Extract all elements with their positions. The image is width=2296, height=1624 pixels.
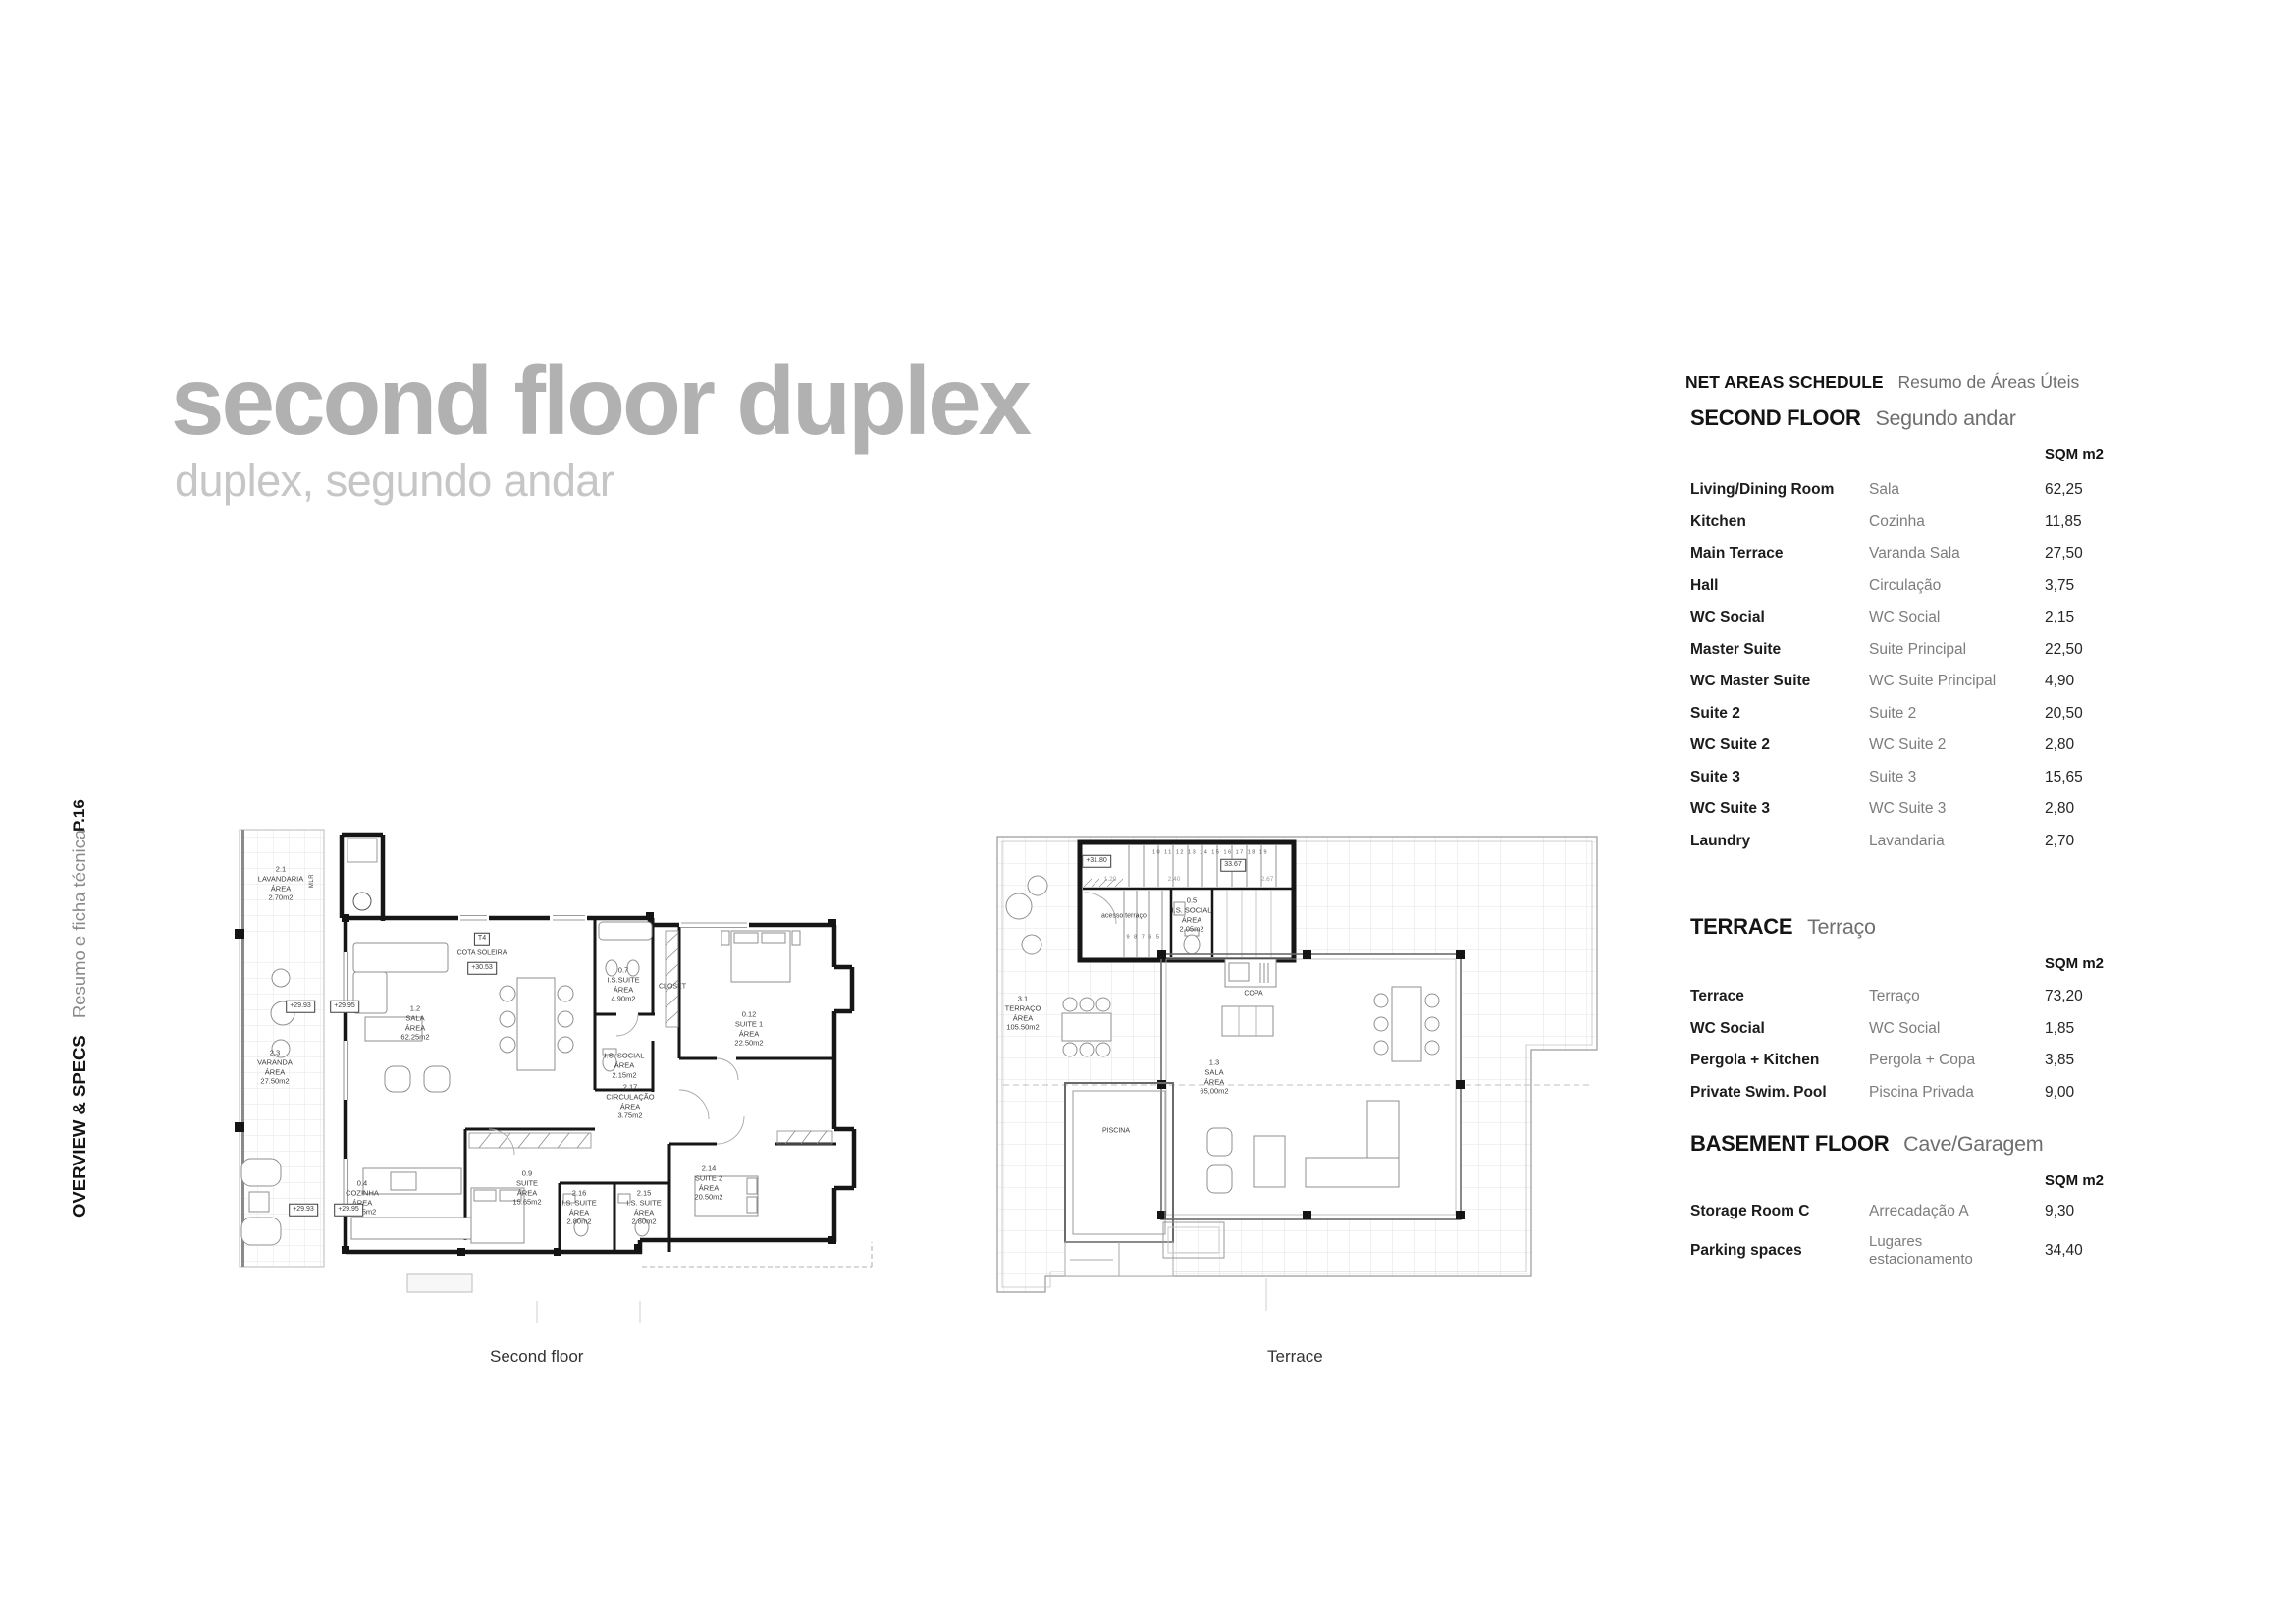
room-name-en: Kitchen: [1690, 514, 1869, 531]
room-name-en: Suite 2: [1690, 705, 1869, 723]
room-name-en: WC Social: [1690, 1020, 1869, 1038]
section-title-pt: Cave/Garagem: [1903, 1132, 2043, 1156]
room-name-pt: Lugares estacionamento: [1869, 1233, 2045, 1268]
dimension-label: 1.20: [1104, 876, 1117, 884]
room-label-is-social: 0.5 I.S. SOCIAL ÁREA 2.05m2: [1172, 896, 1212, 935]
room-area: 15,65: [2045, 769, 2083, 786]
page-subtitle: duplex, segundo andar: [175, 456, 614, 507]
terrace-dashed-outline: [642, 1242, 872, 1267]
table-row: WC Master SuiteWC Suite Principal4,90: [1690, 666, 2152, 698]
sidebar-section-pt: Resumo e ficha técnica: [69, 830, 89, 1018]
cota-label: 33.67: [1220, 859, 1246, 872]
room-name-pt: Sala: [1869, 481, 2045, 499]
reference-lines: [537, 1301, 640, 1323]
plan-caption-second-floor: Second floor: [490, 1347, 583, 1367]
unit-header: SQM m2: [2045, 446, 2104, 462]
room-name-pt: Terraço: [1869, 988, 2045, 1005]
room-label-is-suite-b: 2.15 I.S. SUITE ÁREA 2.80m2: [626, 1189, 661, 1227]
schedule-header-en: NET AREAS SCHEDULE: [1685, 372, 1884, 392]
room-area: 3,85: [2045, 1052, 2074, 1069]
room-area: 22,50: [2045, 641, 2083, 659]
room-area: 3,75: [2045, 577, 2074, 595]
room-name-en: Pergola + Kitchen: [1690, 1052, 1869, 1069]
section-title-pt: Terraço: [1807, 915, 1876, 939]
room-area: 2,80: [2045, 800, 2074, 818]
table-row: WC Suite 3WC Suite 32,80: [1690, 793, 2152, 826]
pool-bg: [1065, 1083, 1173, 1242]
room-label-circulacao: 2.17 CIRCULAÇÃO ÁREA 3.75m2: [606, 1083, 654, 1121]
room-area: 9,30: [2045, 1203, 2074, 1220]
room-name-en: Private Swim. Pool: [1690, 1084, 1869, 1102]
room-area: 9,00: [2045, 1084, 2074, 1102]
level-label: +29.95: [334, 1204, 363, 1217]
room-name-en: WC Suite 2: [1690, 736, 1869, 754]
room-name-en: Master Suite: [1690, 641, 1869, 659]
room-name-pt: Pergola + Copa: [1869, 1052, 2045, 1069]
room-name-pt: Arrecadação A: [1869, 1203, 2045, 1220]
t4-label: T4: [474, 933, 490, 946]
room-name-pt: WC Social: [1869, 609, 2045, 626]
unit-header: SQM m2: [2045, 1172, 2104, 1189]
room-area: 73,20: [2045, 988, 2083, 1005]
room-name-pt: WC Suite 2: [1869, 736, 2045, 754]
room-name-en: Terrace: [1690, 988, 1869, 1005]
room-name-en: Main Terrace: [1690, 545, 1869, 563]
room-name-pt: WC Suite Principal: [1869, 673, 2045, 690]
level-label: +29.93: [286, 1001, 315, 1013]
unit-header: SQM m2: [2045, 955, 2104, 972]
page-title: second floor duplex: [171, 346, 1029, 457]
room-area: 2,15: [2045, 609, 2074, 626]
room-name-en: WC Suite 3: [1690, 800, 1869, 818]
terrace-plan: +31.80 33.67 10 11 12 13 14 15 16 17 18 …: [982, 820, 1610, 1330]
room-label-suite: 0.9 SUITE ÁREA 15.65m2: [512, 1169, 541, 1208]
terrace-drawing: [982, 820, 1610, 1330]
room-label-piscina: PISCINA: [1102, 1126, 1130, 1135]
room-label-mlr: MLR: [309, 874, 317, 888]
table-row: Private Swim. PoolPiscina Privada9,00: [1690, 1077, 2152, 1110]
table-row: Main TerraceVaranda Sala27,50: [1690, 538, 2152, 570]
room-name-pt: WC Social: [1869, 1020, 2045, 1038]
room-label-suite1: 0.12 SUITE 1 ÁREA 22.50m2: [734, 1010, 763, 1049]
section-title-en: SECOND FLOOR: [1690, 406, 1861, 430]
room-label-is-suite-a: 2.16 I.S. SUITE ÁREA 2.80m2: [561, 1189, 596, 1227]
room-name-pt: WC Suite 3: [1869, 800, 2045, 818]
room-name-pt: Lavandaria: [1869, 833, 2045, 850]
room-area: 20,50: [2045, 705, 2083, 723]
table-row: Suite 3Suite 315,65: [1690, 762, 2152, 794]
room-name-en: Laundry: [1690, 833, 1869, 850]
stair-numbers-bottom: 9 8 7 6 5: [1127, 934, 1161, 941]
room-label-is-suite: 0.7 I.S.SUITE ÁREA 4.90m2: [607, 966, 639, 1004]
room-label-is-social: I.S. SOCIAL ÁREA 2.15m2: [605, 1051, 645, 1079]
sidebar-section-label: OVERVIEW & SPECS Resumo e ficha técnica: [69, 830, 90, 1218]
room-name-en: Storage Room C: [1690, 1203, 1869, 1220]
stair-numbers-top: 10 11 12 13 14 15 16 17 18 19: [1152, 849, 1268, 856]
room-name-en: Hall: [1690, 577, 1869, 595]
room-label-lavandaria: 2.1 LAVANDARIA ÁREA 2.70m2: [258, 865, 303, 903]
table-row: LaundryLavandaria2,70: [1690, 826, 2152, 858]
table-row: WC SocialWC Social1,85: [1690, 1013, 2152, 1046]
second-floor-plan: 2.1 LAVANDARIA ÁREA 2.70m2 MLR +29.93 +2…: [226, 805, 874, 1326]
room-area: 11,85: [2045, 514, 2082, 531]
section-title-en: BASEMENT FLOOR: [1690, 1131, 1889, 1156]
table-row: Storage Room CArrecadação A9,30: [1690, 1196, 2152, 1228]
table-row: Suite 2Suite 220,50: [1690, 698, 2152, 731]
room-label-terraco: 3.1 TERRAÇO ÁREA 105.50m2: [1005, 995, 1041, 1033]
sidebar-section-en: OVERVIEW & SPECS: [69, 1035, 89, 1218]
room-area: 2,70: [2045, 833, 2074, 850]
second-floor-drawing: [226, 805, 874, 1326]
schedule-header-pt: Resumo de Áreas Úteis: [1897, 372, 2079, 392]
level-label: +31.80: [1082, 855, 1111, 868]
dimension-label: 2.67: [1261, 876, 1274, 884]
room-name-pt: Suite Principal: [1869, 641, 2045, 659]
section-title-pt: Segundo andar: [1875, 406, 2015, 430]
second-floor-rows: Living/Dining RoomSala62,25 KitchenCozin…: [1690, 474, 2152, 857]
table-row: Master SuiteSuite Principal22,50: [1690, 634, 2152, 667]
page: second floor duplex duplex, segundo anda…: [0, 0, 2296, 1624]
table-row: KitchenCozinha11,85: [1690, 507, 2152, 539]
room-name-pt: Circulação: [1869, 577, 2045, 595]
schedule-header: NET AREAS SCHEDULE Resumo de Áreas Úteis: [1685, 372, 2079, 393]
room-name-pt: Cozinha: [1869, 514, 2045, 531]
room-name-en: WC Master Suite: [1690, 673, 1869, 690]
table-row: Parking spacesLugares estacionamento34,4…: [1690, 1228, 2152, 1273]
page-number: P.16: [70, 799, 89, 832]
table-row: WC Suite 2WC Suite 22,80: [1690, 730, 2152, 762]
room-label-varanda: 2.3 VARANDA ÁREA 27.50m2: [257, 1049, 293, 1087]
table-row: Living/Dining RoomSala62,25: [1690, 474, 2152, 507]
level-label: +29.93: [289, 1204, 318, 1217]
section-heading-basement: BASEMENT FLOOR Cave/Garagem: [1690, 1131, 2043, 1157]
table-row: WC SocialWC Social2,15: [1690, 602, 2152, 634]
room-area: 34,40: [2045, 1242, 2083, 1260]
room-label-sala: 1.2 SALA ÁREA 62.25m2: [400, 1004, 429, 1043]
room-name-en: Living/Dining Room: [1690, 481, 1869, 499]
room-name-pt: Suite 2: [1869, 705, 2045, 723]
room-name-en: Parking spaces: [1690, 1242, 1869, 1260]
table-row: TerraceTerraço73,20: [1690, 981, 2152, 1013]
entry-step: [407, 1274, 472, 1292]
dimension-label: 2.40: [1168, 876, 1181, 884]
section-title-en: TERRACE: [1690, 914, 1792, 939]
room-label-copa: COPA: [1244, 989, 1262, 998]
room-area: 4,90: [2045, 673, 2074, 690]
level-label: +29.95: [330, 1001, 359, 1013]
room-label-sala: 1.3 SALA ÁREA 65,00m2: [1200, 1058, 1228, 1097]
room-label-suite2: 2.14 SUITE 2 ÁREA 20.50m2: [694, 1164, 722, 1203]
cota-level-label: +30.53: [467, 962, 497, 975]
terrace-rows: TerraceTerraço73,20 WC SocialWC Social1,…: [1690, 981, 2152, 1109]
section-heading-terrace: TERRACE Terraço: [1690, 914, 1876, 940]
room-area: 2,80: [2045, 736, 2074, 754]
room-name-pt: Varanda Sala: [1869, 545, 2045, 563]
room-name-pt: Suite 3: [1869, 769, 2045, 786]
room-label-closet: CLOSET: [659, 982, 686, 991]
room-name-en: WC Social: [1690, 609, 1869, 626]
basement-rows: Storage Room CArrecadação A9,30 Parking …: [1690, 1196, 2152, 1273]
cota-soleira-label: COTA SOLEIRA: [457, 948, 507, 957]
room-name-en: Suite 3: [1690, 769, 1869, 786]
room-label-acesso: acesso terraço: [1101, 911, 1147, 920]
room-area: 27,50: [2045, 545, 2083, 563]
table-row: Pergola + KitchenPergola + Copa3,85: [1690, 1045, 2152, 1077]
plan-caption-terrace: Terrace: [1267, 1347, 1323, 1367]
room-name-pt: Piscina Privada: [1869, 1084, 2045, 1102]
table-row: HallCirculação3,75: [1690, 570, 2152, 603]
room-area: 62,25: [2045, 481, 2083, 499]
section-heading-second-floor: SECOND FLOOR Segundo andar: [1690, 406, 2016, 431]
room-area: 1,85: [2045, 1020, 2074, 1038]
